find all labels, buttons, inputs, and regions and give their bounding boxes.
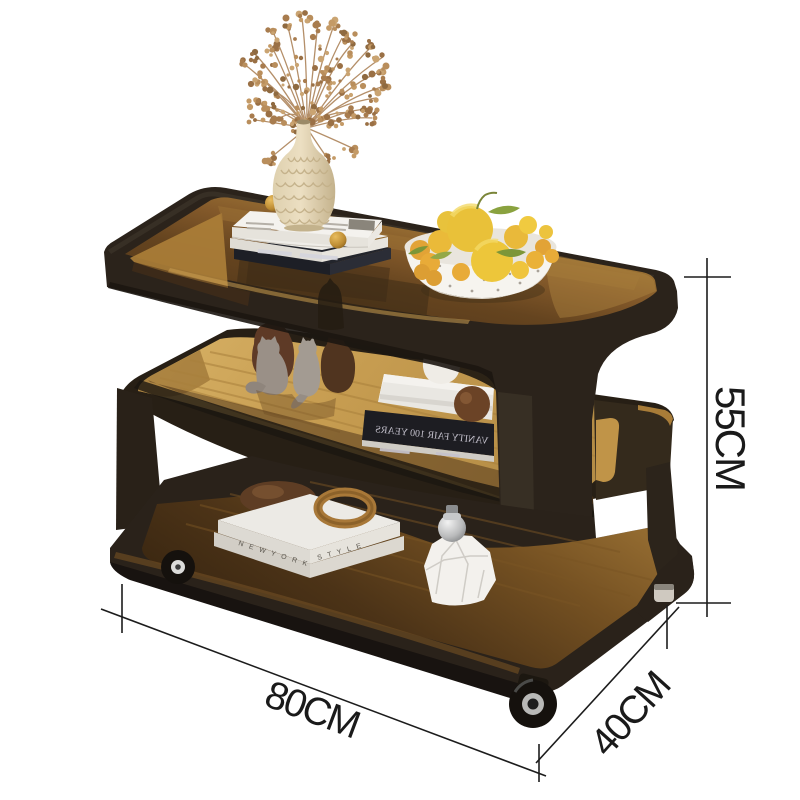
svg-text:40CM: 40CM	[582, 664, 678, 764]
svg-text:55CM: 55CM	[707, 386, 754, 490]
svg-text:80CM: 80CM	[259, 673, 364, 747]
